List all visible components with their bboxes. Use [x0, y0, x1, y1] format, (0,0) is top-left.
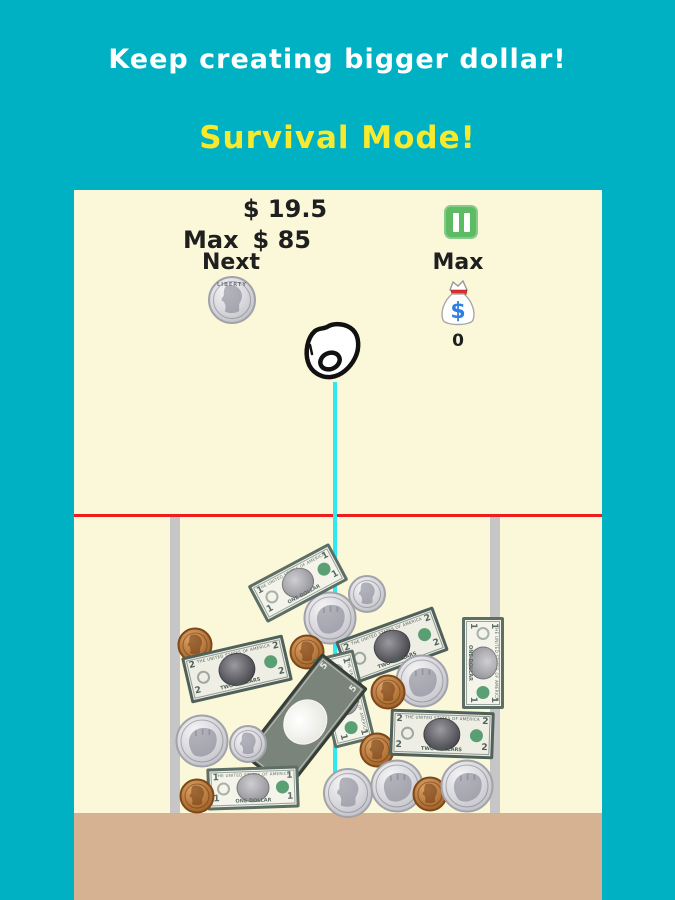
- bill-seal-right: [477, 686, 490, 699]
- fist-icon: [398, 657, 447, 706]
- coin-half: [176, 715, 229, 768]
- bill-seal-left: [477, 627, 490, 640]
- profile-icon: [373, 677, 404, 708]
- fist-icon: [443, 762, 492, 811]
- coin-penny: [371, 675, 406, 710]
- profile-icon: [231, 727, 265, 761]
- coin-penny: [180, 779, 215, 814]
- mode-title: Survival Mode!: [0, 120, 675, 156]
- drop-hand-icon[interactable]: [297, 320, 367, 384]
- bill-bottom-text: ONE DOLLAR: [467, 620, 473, 706]
- profile-icon: [325, 770, 371, 816]
- game-area[interactable]: $ 19.5 Max$ 85 Next LIBERTY Max $ 0 1111…: [74, 190, 602, 900]
- bill-2-dollar: 2222THE UNITED STATES OF AMERICATWO DOLL…: [389, 709, 495, 760]
- coin-half: [441, 760, 494, 813]
- profile-icon: [350, 577, 384, 611]
- fist-icon: [178, 717, 227, 766]
- coin-dime: [229, 725, 267, 763]
- profile-icon: [182, 781, 213, 812]
- coin-quarter: [323, 768, 373, 818]
- game-screen: Keep creating bigger dollar! Survival Mo…: [0, 0, 675, 900]
- bill-1-dollar: 1111THE UNITED STATES OF AMERICAONE DOLL…: [206, 765, 299, 810]
- page-title: Keep creating bigger dollar!: [0, 44, 675, 75]
- bill-1-dollar: 1111THE UNITED STATES OF AMERICAONE DOLL…: [462, 617, 504, 709]
- money-pile: 1111THE UNITED STATES OF AMERICAONE DOLL…: [74, 190, 602, 900]
